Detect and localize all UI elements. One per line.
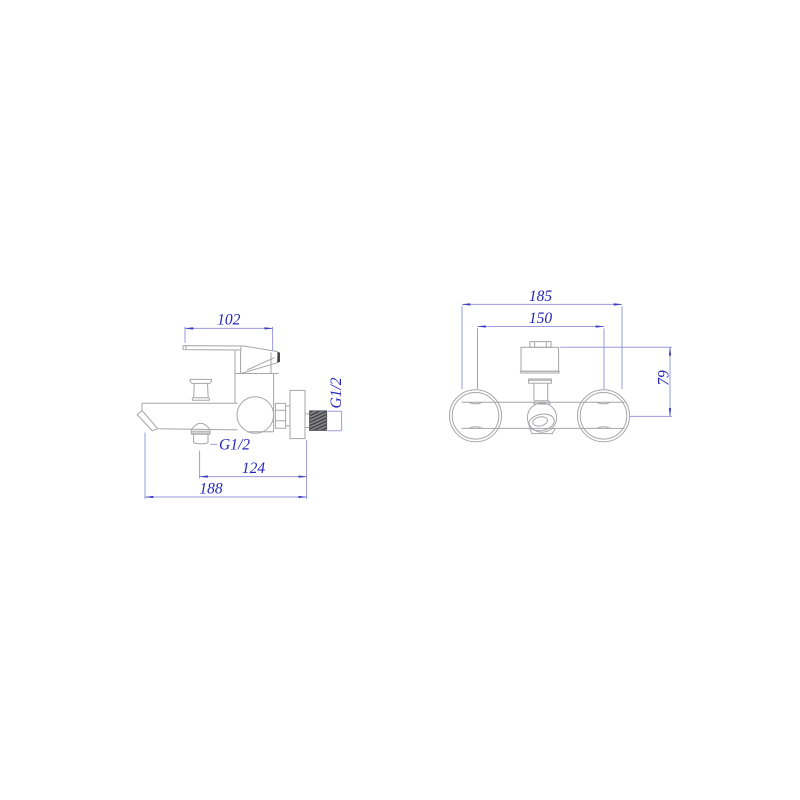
dim-hole-spacing: 150 <box>529 310 553 327</box>
handle-end-front <box>530 342 551 348</box>
body-side <box>235 351 279 432</box>
left-flange-outer <box>450 390 502 442</box>
faucet-front-outline <box>450 342 630 442</box>
dim-body-height: 79 <box>655 370 672 386</box>
side-view: 102 G1/2 124 188 G1/2 <box>137 312 345 499</box>
front-view-dimensions <box>462 304 672 416</box>
left-flange-inner <box>452 393 499 440</box>
technical-drawing: 102 G1/2 124 188 G1/2 <box>0 0 800 800</box>
aerator-face <box>532 415 548 427</box>
spout-side <box>137 403 238 431</box>
nipple-neck-side <box>305 414 310 428</box>
dim-overall-width: 185 <box>529 288 553 305</box>
spout-ball-front <box>527 403 556 432</box>
body-front <box>521 347 559 371</box>
right-flange-inner <box>580 393 627 440</box>
faucet-side-outline <box>137 346 327 444</box>
handle-lever <box>183 346 278 352</box>
handle-underside <box>241 350 278 374</box>
flange-fillets <box>469 402 611 428</box>
diverter-flange-front <box>529 379 552 383</box>
dim-outlet-to-wall: 124 <box>242 460 266 477</box>
body-bottom-flange <box>520 371 559 373</box>
shower-outlet-side <box>191 423 210 444</box>
diverter-knob-side <box>190 379 212 400</box>
front-view: 185 150 79 <box>450 288 673 442</box>
diverter-front <box>529 380 552 404</box>
wall-nut-side <box>275 403 290 428</box>
body-bar-front <box>461 402 624 428</box>
handle-end-detail <box>535 342 547 348</box>
dim-handle-length: 102 <box>217 312 241 329</box>
threaded-nipple-side <box>310 411 327 431</box>
dim-outlet-thread: G1/2 <box>219 437 250 454</box>
dim-overall-projection: 188 <box>199 480 223 497</box>
valve-ball-side <box>237 397 274 434</box>
dim-inlet-thread: G1/2 <box>328 377 345 408</box>
right-flange-outer <box>578 390 630 442</box>
aerator-ring <box>527 412 556 433</box>
handle-tip <box>277 352 280 363</box>
wall-flange-side <box>290 390 305 438</box>
